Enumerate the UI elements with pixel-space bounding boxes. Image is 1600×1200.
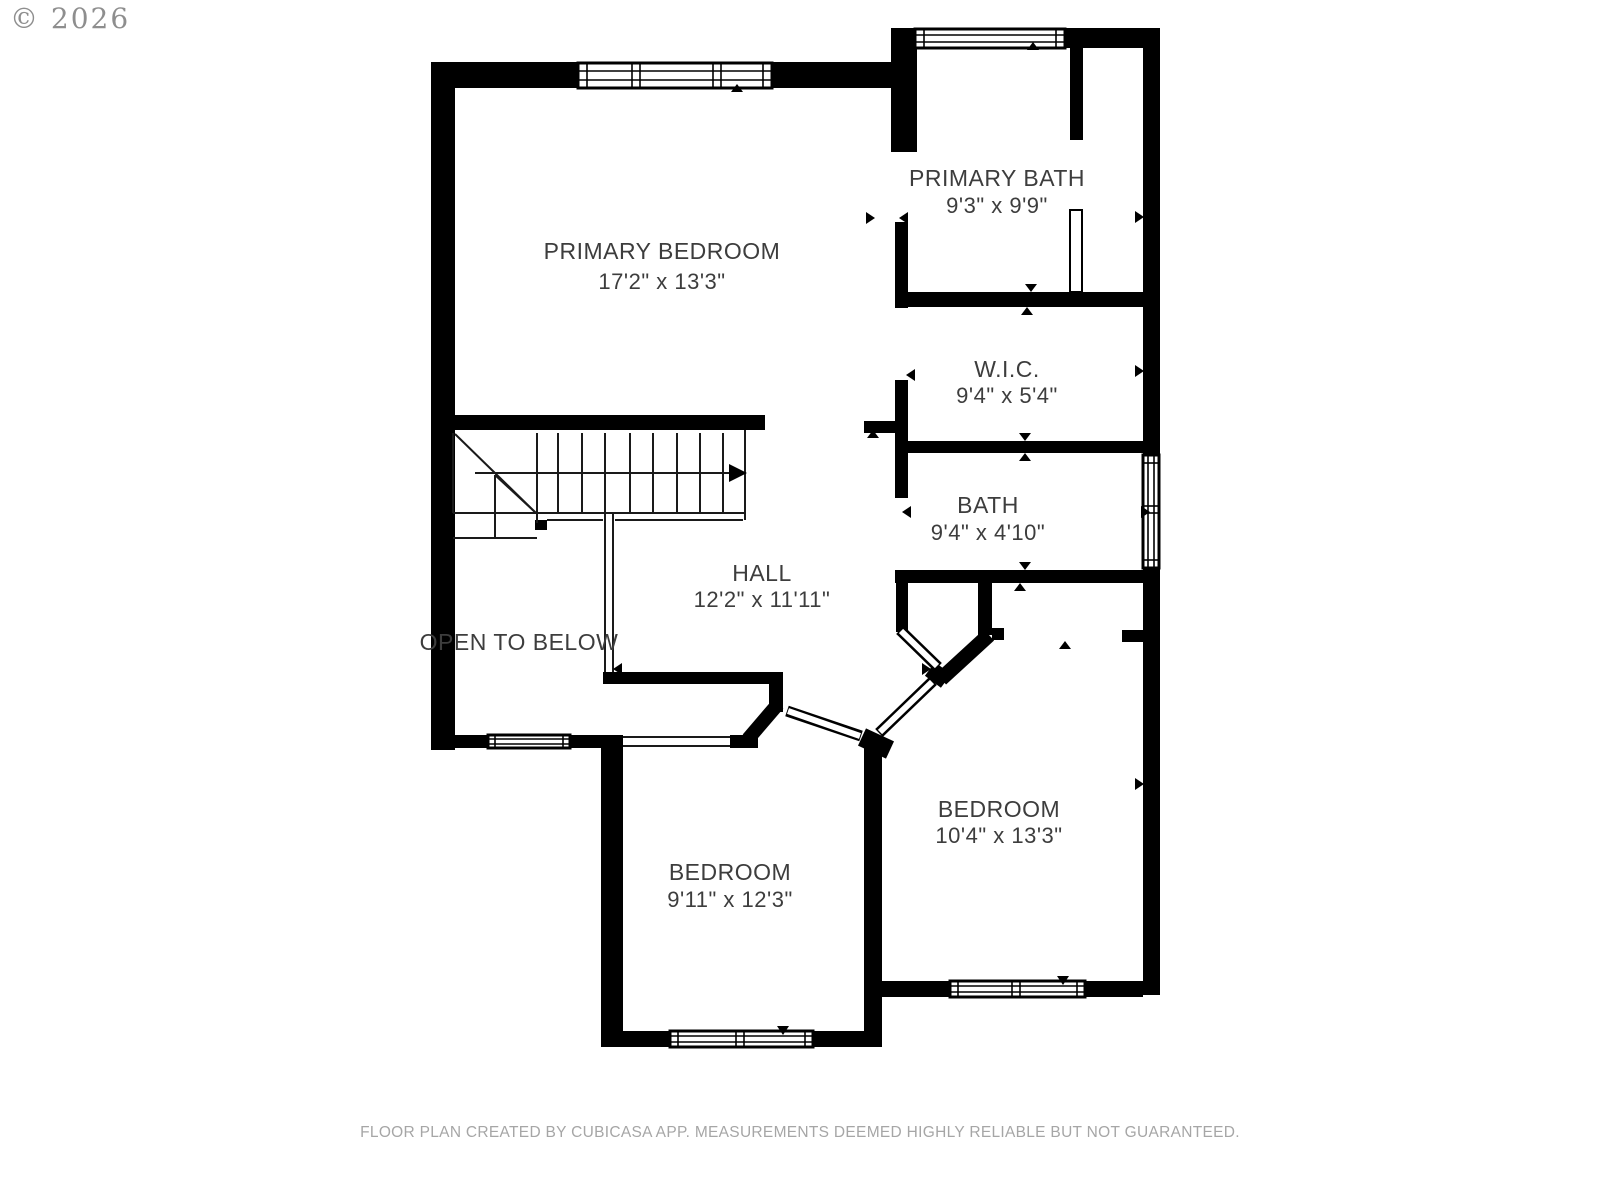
wall-vestibule-top bbox=[603, 672, 783, 684]
wall-vestibule-angle bbox=[748, 704, 778, 739]
marker-bathbottom-south bbox=[1014, 583, 1026, 591]
marker-bathbottom-north bbox=[1019, 562, 1031, 570]
doors bbox=[787, 630, 938, 736]
marker-wic-door bbox=[906, 369, 915, 381]
window-bedroom-left bbox=[670, 1031, 813, 1047]
wall-hall-right-b bbox=[895, 380, 908, 498]
stair-landing bbox=[453, 513, 743, 538]
wall-shower-stub bbox=[1070, 28, 1083, 140]
dims-primary-bath: 9'3" x 9'9" bbox=[946, 193, 1048, 218]
wall-primary-bedroom-bottom bbox=[443, 415, 765, 430]
wall-bedroom-right-bottom-a bbox=[864, 981, 950, 997]
window-primary-bath bbox=[915, 29, 1065, 48]
bath-glass-partition bbox=[1070, 210, 1082, 292]
door-hinge-block-lower bbox=[862, 737, 890, 750]
wall-hall-right-c bbox=[896, 583, 908, 632]
stair-direction-arrow bbox=[475, 464, 747, 482]
wall-open-below-bottom-left bbox=[431, 735, 488, 748]
dims-primary-bedroom: 17'2" x 13'3" bbox=[598, 269, 725, 294]
marker-bath2-door bbox=[902, 506, 911, 518]
window-primary-bedroom bbox=[578, 63, 772, 88]
wall-bedroom-right-entry-foot bbox=[992, 628, 1004, 640]
floor-plan-page: © 2026 bbox=[0, 0, 1600, 1200]
label-bedroom-left: BEDROOM bbox=[669, 859, 791, 885]
wall-hall-stub bbox=[864, 421, 895, 433]
door-hinge-block-upper bbox=[930, 669, 946, 681]
label-wic: W.I.C. bbox=[974, 356, 1040, 382]
dims-bedroom-right: 10'4" x 13'3" bbox=[935, 823, 1062, 848]
dims-wic: 9'4" x 5'4" bbox=[956, 383, 1058, 408]
window-bedroom-right bbox=[950, 981, 1085, 997]
marker-bathwic-south bbox=[1021, 307, 1033, 315]
dims-hall: 12'2" x 11'11" bbox=[694, 587, 831, 612]
marker-right-wall-bath1 bbox=[1135, 211, 1144, 223]
label-hall: HALL bbox=[732, 560, 792, 586]
wall-open-below-bottom-right bbox=[570, 735, 603, 748]
label-open-to-below: OPEN TO BELOW bbox=[420, 629, 619, 655]
wall-bath-bottom bbox=[895, 570, 1160, 583]
door-leaf-bedroom-left bbox=[879, 681, 933, 733]
label-primary-bedroom: PRIMARY BEDROOM bbox=[544, 238, 781, 264]
window-open-below bbox=[488, 735, 570, 748]
label-primary-bath: PRIMARY BATH bbox=[909, 165, 1085, 191]
wall-bedroom-left-west bbox=[601, 735, 623, 1047]
marker-right-wall-wic bbox=[1135, 365, 1144, 377]
door-leaf-vestibule bbox=[787, 711, 861, 736]
marker-wicbath-north bbox=[1019, 433, 1031, 441]
marker-right-wall-bedroom bbox=[1135, 778, 1144, 790]
dims-bath: 9'4" x 4'10" bbox=[931, 520, 1045, 545]
label-bath: BATH bbox=[957, 492, 1019, 518]
marker-wicbath-south bbox=[1019, 453, 1031, 461]
marker-bathwic-north bbox=[1025, 284, 1037, 292]
wall-bedroom-right-bottom-b bbox=[1085, 981, 1143, 997]
wall-bedroom-right-entry-bar bbox=[978, 583, 992, 635]
floor-plan-drawing: PRIMARY BEDROOM 17'2" x 13'3" PRIMARY BA… bbox=[0, 0, 1600, 1200]
wall-wic-bath-divider bbox=[898, 441, 1160, 453]
door-leaf-bedroom-right bbox=[900, 630, 938, 667]
footer-disclaimer: FLOOR PLAN CREATED BY CUBICASA APP. MEAS… bbox=[0, 1124, 1600, 1142]
wall-closet-stub bbox=[1122, 630, 1143, 642]
marker-bath-door-west bbox=[866, 212, 875, 224]
label-bedroom-right: BEDROOM bbox=[938, 796, 1060, 822]
dims-bedroom-left: 9'11" x 12'3" bbox=[667, 887, 793, 912]
stair-break-line-2 bbox=[495, 475, 536, 513]
wall-bath-wic-divider bbox=[895, 292, 1160, 307]
wall-bedroom-left-bottom-a bbox=[601, 1031, 670, 1047]
marker-closet-stub bbox=[1059, 641, 1071, 649]
